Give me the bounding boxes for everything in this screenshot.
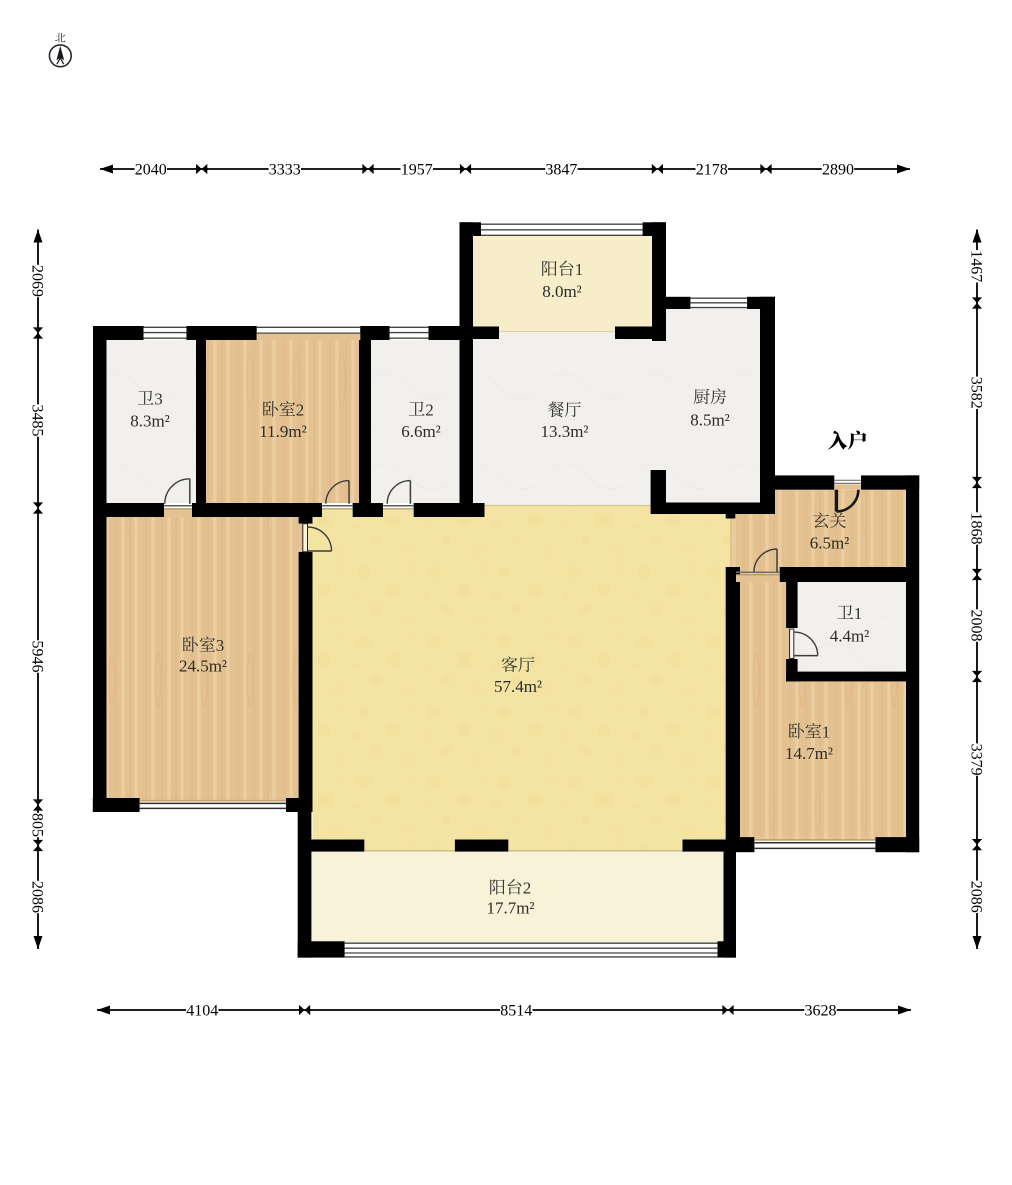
svg-text:1: 1 <box>822 722 831 741</box>
svg-text:2178: 2178 <box>696 161 728 178</box>
svg-text:17.7m²: 17.7m² <box>486 898 534 917</box>
svg-text:2008: 2008 <box>968 610 985 642</box>
svg-text:5946: 5946 <box>29 641 46 673</box>
svg-text:8.3m²: 8.3m² <box>130 411 170 430</box>
svg-text:2: 2 <box>425 400 434 419</box>
svg-text:24.5m²: 24.5m² <box>179 656 227 675</box>
svg-text:6.6m²: 6.6m² <box>401 422 441 441</box>
svg-text:3379: 3379 <box>968 744 985 776</box>
svg-text:11.9m²: 11.9m² <box>259 422 306 441</box>
svg-text:2890: 2890 <box>822 161 854 178</box>
svg-text:2: 2 <box>296 400 305 419</box>
svg-text:2069: 2069 <box>29 265 46 297</box>
svg-text:3333: 3333 <box>269 161 301 178</box>
svg-text:3628: 3628 <box>805 1002 837 1019</box>
svg-text:1: 1 <box>854 604 863 623</box>
svg-text:2086: 2086 <box>968 881 985 913</box>
svg-text:4104: 4104 <box>186 1002 218 1019</box>
svg-text:805: 805 <box>29 813 46 837</box>
svg-text:2040: 2040 <box>135 161 167 178</box>
svg-text:13.3m²: 13.3m² <box>540 422 588 441</box>
svg-text:1467: 1467 <box>968 250 985 282</box>
svg-text:57.4m²: 57.4m² <box>494 677 542 696</box>
svg-text:8.5m²: 8.5m² <box>690 410 730 429</box>
svg-text:3847: 3847 <box>545 161 577 178</box>
svg-text:8514: 8514 <box>500 1002 532 1019</box>
svg-text:2: 2 <box>523 878 532 897</box>
svg-text:6.5m²: 6.5m² <box>810 533 850 552</box>
svg-text:3: 3 <box>216 636 225 655</box>
svg-text:3582: 3582 <box>968 377 985 409</box>
svg-text:1957: 1957 <box>401 161 433 178</box>
svg-text:3: 3 <box>154 389 163 408</box>
svg-text:3485: 3485 <box>29 405 46 437</box>
svg-text:8.0m²: 8.0m² <box>542 282 582 301</box>
svg-text:1: 1 <box>575 260 584 279</box>
svg-text:4.4m²: 4.4m² <box>830 626 870 645</box>
svg-text:1868: 1868 <box>968 513 985 545</box>
svg-text:14.7m²: 14.7m² <box>785 744 833 763</box>
svg-text:2086: 2086 <box>29 881 46 913</box>
